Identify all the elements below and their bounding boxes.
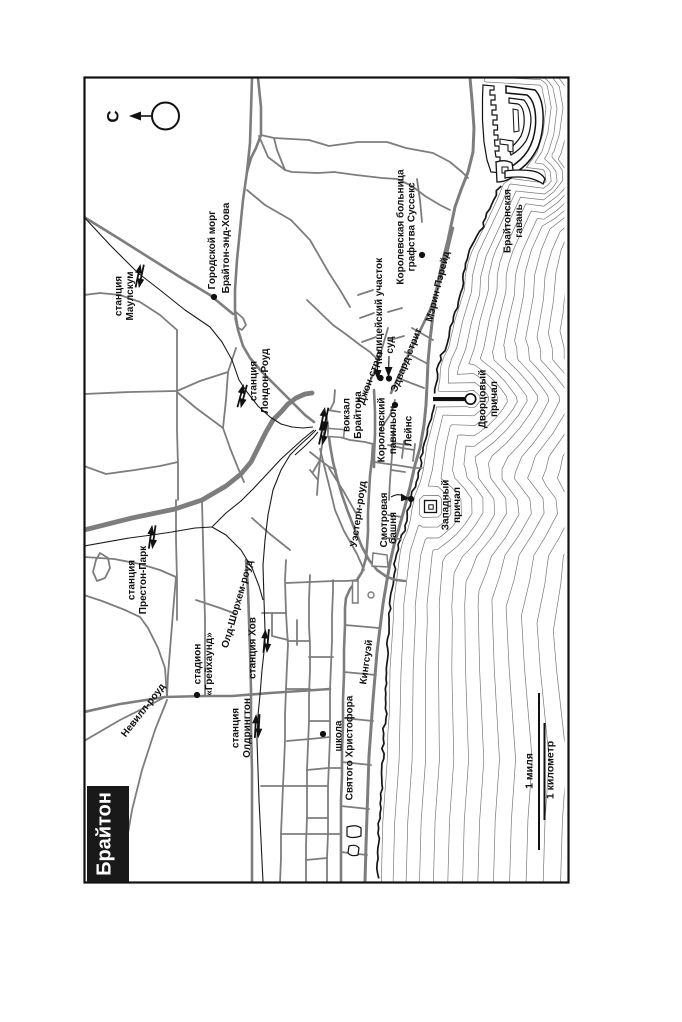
svg-text:полицейский участок: полицейский участок [374, 257, 385, 364]
svg-text:Королевский: Королевский [377, 398, 388, 463]
svg-text:Святого Христофора: Святого Христофора [343, 695, 355, 800]
svg-text:Брайтон: Брайтон [94, 792, 116, 876]
svg-text:павильон: павильон [388, 406, 399, 455]
svg-text:Маулскум: Маулскум [125, 271, 136, 320]
svg-text:вокзал: вокзал [342, 398, 353, 432]
svg-text:станция: станция [249, 361, 260, 401]
svg-text:станция: станция [231, 708, 242, 748]
svg-text:«Грейхаунд»: «Грейхаунд» [204, 632, 215, 696]
svg-text:школа: школа [333, 720, 344, 751]
svg-text:Дворцовый: Дворцовый [478, 370, 489, 428]
svg-text:Королевская больница: Королевская больница [395, 169, 407, 285]
svg-text:Лондон-Роуд: Лондон-Роуд [260, 348, 271, 414]
svg-text:стадион: стадион [193, 644, 204, 685]
svg-text:Лейнс: Лейнс [403, 415, 414, 446]
svg-text:Городской морг: Городской морг [207, 211, 218, 290]
svg-text:станция: станция [127, 560, 138, 600]
svg-text:1 километр: 1 километр [545, 741, 557, 799]
svg-text:причал: причал [452, 487, 463, 523]
svg-text:1 миля: 1 миля [524, 753, 536, 789]
svg-text:Западный: Западный [441, 480, 452, 531]
svg-text:башня: башня [387, 512, 399, 544]
svg-text:Брайтон-энд-Хова: Брайтон-энд-Хова [221, 202, 232, 293]
svg-text:гавань: гавань [514, 204, 525, 238]
svg-text:Престон-Парк: Престон-Парк [138, 545, 149, 614]
svg-text:Брайтонская: Брайтонская [503, 189, 514, 253]
svg-text:станция Хов: станция Хов [247, 617, 258, 679]
svg-text:суд: суд [385, 336, 396, 354]
svg-text:Олдрингтон: Олдрингтон [242, 698, 253, 758]
svg-text:графства Суссекс: графства Суссекс [406, 182, 418, 271]
svg-text:причал: причал [489, 381, 500, 417]
svg-text:станция: станция [114, 276, 125, 316]
svg-text:С: С [104, 110, 123, 122]
